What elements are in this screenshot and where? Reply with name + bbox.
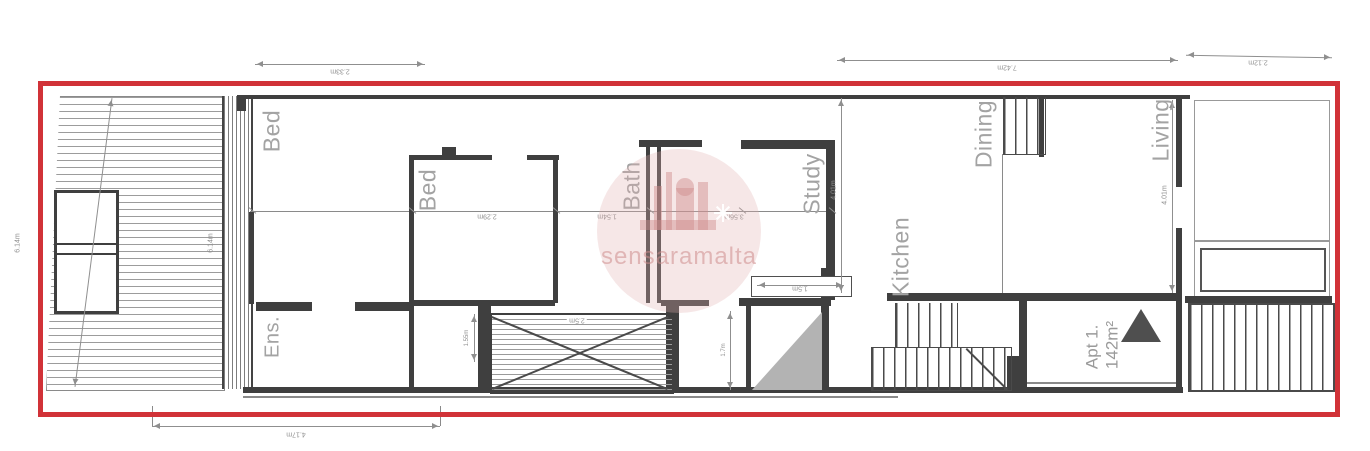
dimension-line xyxy=(255,64,425,65)
dimension-label-left-height: 6.14m xyxy=(15,233,22,252)
dimension-line xyxy=(837,60,1178,61)
dimension-label-top-main: 7.42m xyxy=(997,64,1016,71)
dimension-label-top-right: 2.12m xyxy=(1248,59,1267,66)
dimension-label-bottom-left: 4.17m xyxy=(286,431,305,438)
dimension-line xyxy=(152,426,440,427)
floor-plan-canvas: 1.5m 2.33m 7.42m 2.12m 4.17m 2.29m 1.54m… xyxy=(0,0,1370,451)
red-boundary xyxy=(38,81,1340,417)
dimension-label-top-left: 2.33m xyxy=(330,68,349,75)
